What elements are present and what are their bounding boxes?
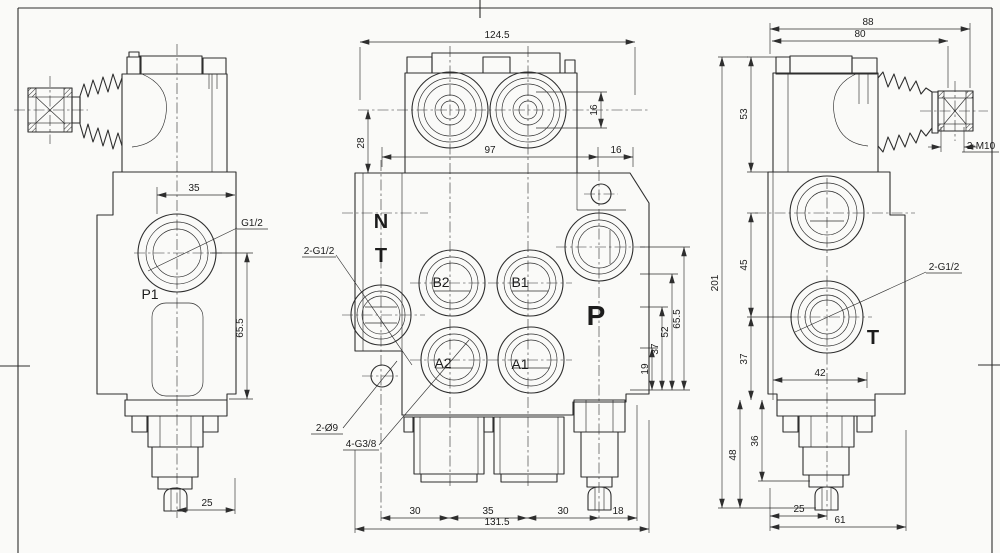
a1-label: A1	[511, 356, 528, 372]
dim-28: 28	[356, 137, 367, 149]
dim-16-horiz: 16	[610, 145, 622, 156]
leader-4-g38: 4-G3/8	[346, 439, 377, 450]
top-bolt	[483, 57, 510, 73]
dim-36: 36	[750, 435, 761, 447]
dim-65-5: 65.5	[672, 309, 683, 329]
leader-2-g12-right: 2-G1/2	[929, 262, 960, 273]
dim-25: 25	[793, 504, 805, 515]
n-label: N	[374, 211, 388, 233]
lever-handle-section	[14, 76, 88, 144]
head-bolt	[776, 57, 790, 74]
dim-35: 35	[188, 183, 200, 194]
technical-drawing: 35 G1/2 P1 65.5 25	[0, 0, 1000, 553]
top-view: 124.5 28 16 97 16	[356, 30, 650, 488]
relief-valve-front	[574, 400, 625, 510]
head-bolt	[127, 57, 141, 74]
left-view-dimensions: 35 G1/2 P1 65.5 25	[141, 183, 268, 514]
p1-label: P1	[141, 286, 158, 302]
dim-61: 61	[834, 515, 846, 526]
front-view-right-dimensions: 19 37 52 65.5	[630, 247, 690, 390]
dim-30-right: 30	[557, 506, 569, 517]
leader-2-g12: 2-G1/2	[304, 246, 335, 257]
front-view: N T B2 B1 A2 A1 P 2-G1/2 2-Ø9 4-G3/8 19	[302, 160, 690, 533]
dim-45: 45	[739, 259, 750, 271]
head-bolt	[852, 58, 877, 74]
dim-25: 25	[201, 498, 213, 509]
t-label: T	[375, 245, 387, 267]
dim-19: 19	[640, 363, 651, 375]
dim-48: 48	[728, 449, 739, 461]
control-head	[122, 52, 227, 172]
spool-boots	[404, 417, 564, 482]
drawing-sheet: 35 G1/2 P1 65.5 25	[0, 0, 1000, 553]
right-side-view: T 2-G1/2 2-M10 88 80 53	[710, 17, 999, 531]
front-view-bottom-dimensions: 30 35 30 18 131.5	[355, 405, 649, 533]
dim-80: 80	[854, 29, 866, 40]
top-view-dimensions: 124.5 28 16 97 16	[356, 30, 635, 173]
lever-handle-section-right	[920, 81, 988, 141]
port-label-g12: G1/2	[241, 218, 263, 229]
dim-16-vert: 16	[589, 104, 600, 116]
leader-2-d9: 2-Ø9	[316, 423, 339, 434]
dim-97: 97	[484, 145, 496, 156]
left-side-view: 35 G1/2 P1 65.5 25	[14, 44, 268, 518]
dim-35: 35	[482, 506, 494, 517]
dim-201: 201	[710, 274, 721, 291]
relief-valve-bottom	[125, 400, 227, 511]
dim-52: 52	[660, 326, 671, 338]
top-bolt	[407, 57, 432, 73]
leader-2-m10: 2-M10	[967, 141, 996, 152]
t-label-right: T	[867, 327, 879, 349]
dim-18: 18	[612, 506, 624, 517]
lever-bellows-right	[878, 72, 938, 152]
dim-124-5: 124.5	[484, 30, 509, 41]
relief-valve-bottom-right	[777, 400, 875, 510]
right-view-leaders: 2-G1/2 2-M10	[795, 127, 999, 332]
dim-37: 37	[739, 353, 750, 365]
b2-label: B2	[432, 274, 449, 290]
dim-37: 37	[650, 343, 661, 355]
right-view-dimensions: 88 80 53 201 45 37 42 48 36	[710, 17, 970, 531]
control-head-right	[773, 56, 878, 172]
head-bolt	[203, 58, 226, 74]
dim-53: 53	[739, 108, 750, 120]
dim-88: 88	[862, 17, 874, 28]
valve-body-right	[755, 172, 915, 520]
dim-131-5: 131.5	[484, 517, 509, 528]
lever-bellows	[80, 74, 122, 149]
b1-label: B1	[511, 274, 528, 290]
dim-30-left: 30	[409, 506, 421, 517]
relief-cap	[164, 488, 187, 511]
p-label: P	[587, 300, 606, 331]
dim-65-5: 65.5	[235, 318, 246, 338]
relief-cap	[815, 487, 838, 510]
dim-42: 42	[814, 368, 826, 379]
